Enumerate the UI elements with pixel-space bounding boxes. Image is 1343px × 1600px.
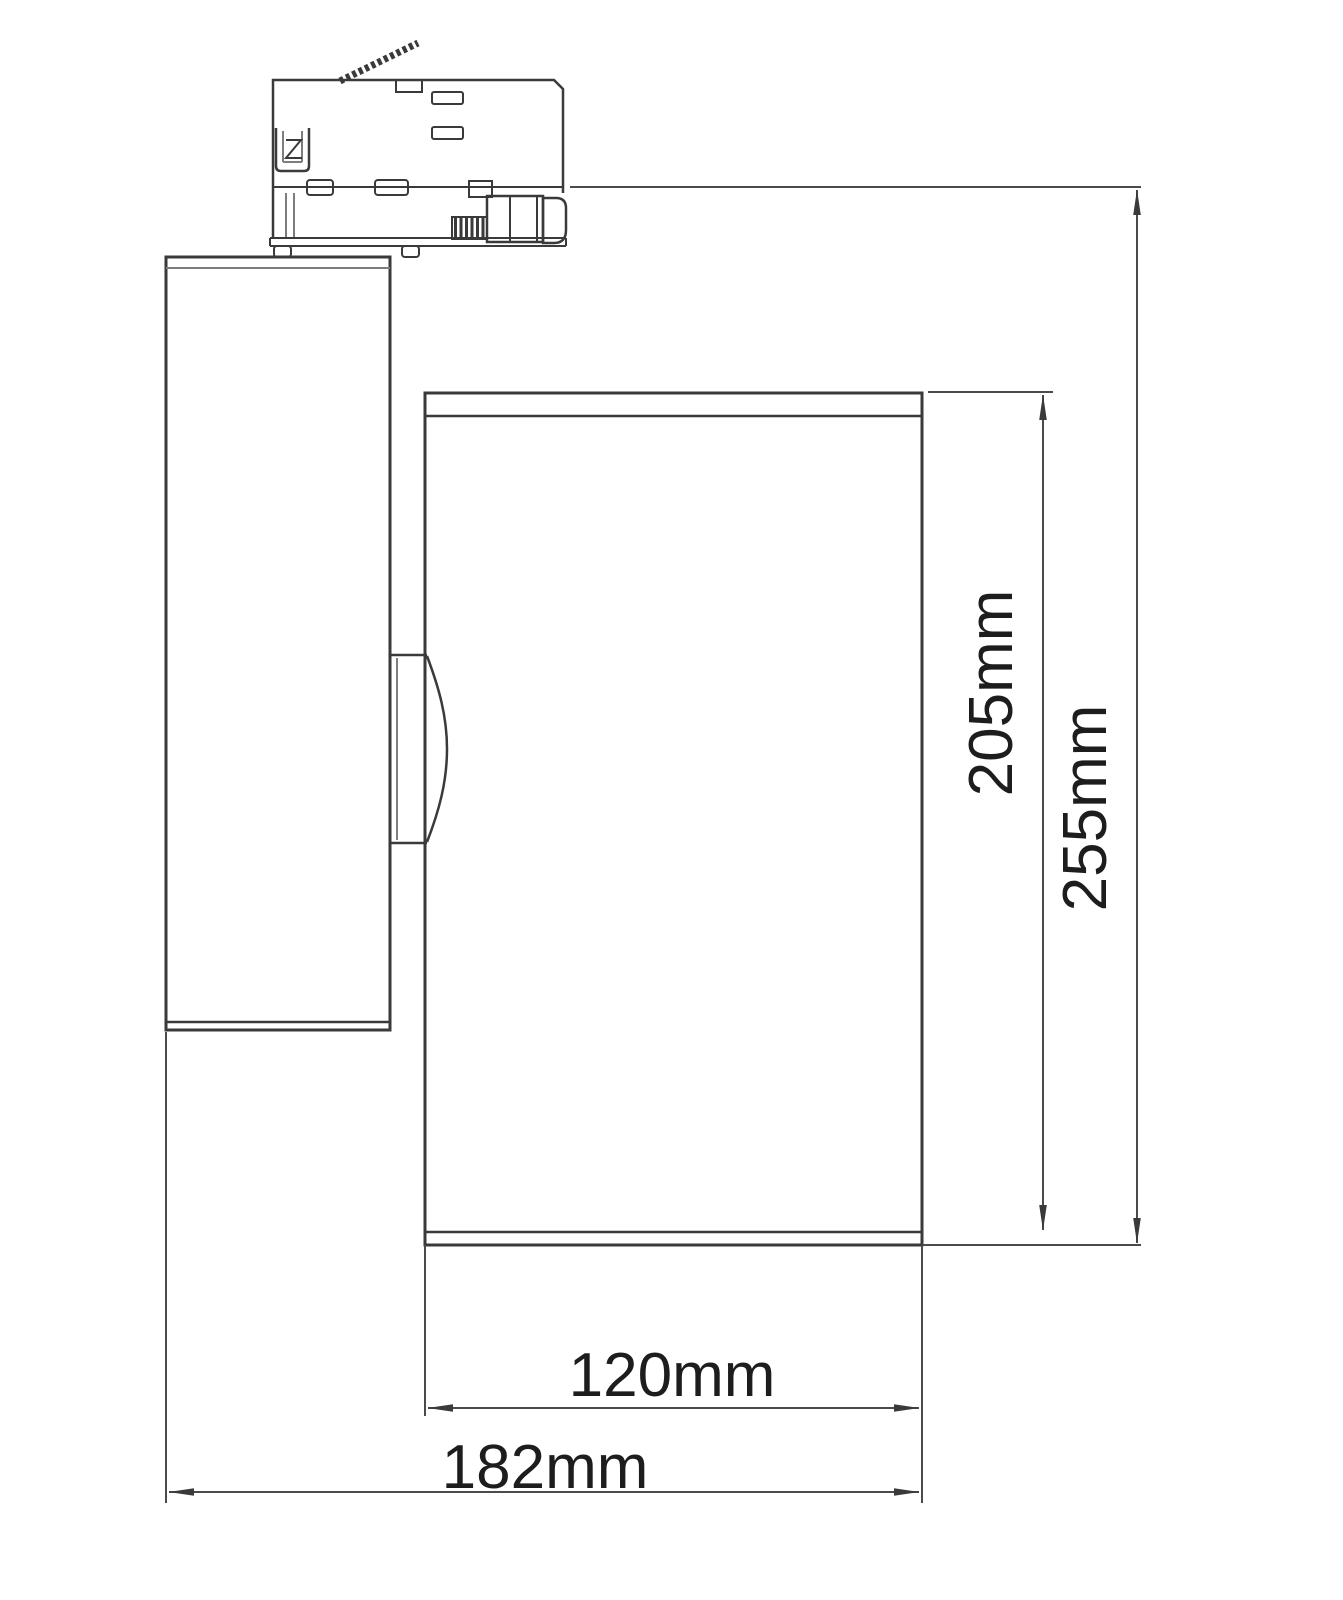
- body-outline: [166, 257, 390, 1030]
- adapter-release-lever: [340, 43, 418, 81]
- adapter-lower-inner-walls: [286, 193, 294, 238]
- track-light-dimension-drawing: 205mm 255mm 120mm 182mm: [0, 0, 1343, 1600]
- adapter-vent-slot-1: [432, 92, 463, 104]
- dim-label-head-width: 120mm: [569, 1341, 776, 1410]
- lock-block-dividers: [510, 196, 537, 242]
- track-adapter: [270, 43, 566, 257]
- adapter-foot-left: [274, 246, 291, 257]
- dim-label-overall-height: 255mm: [1051, 705, 1120, 912]
- knob-bulge: [427, 656, 447, 842]
- adapter-end-cap: [543, 198, 566, 243]
- dim-label-overall-width: 182mm: [442, 1433, 649, 1502]
- dim-label-head-height: 205mm: [957, 590, 1026, 797]
- dimension-drawing-canvas: 205mm 255mm 120mm 182mm: [0, 0, 1343, 1600]
- adapter-foot-right: [402, 246, 419, 257]
- body-side-view: [166, 257, 390, 1030]
- adapter-contact-3: [469, 181, 492, 197]
- dimensions: 205mm 255mm 120mm 182mm: [166, 187, 1141, 1503]
- head-outline: [425, 393, 922, 1245]
- lock-block-body: [487, 196, 543, 242]
- adapter-housing-outline: [273, 80, 563, 238]
- lamp-head-front: [425, 393, 922, 1245]
- knob-top-bottom-edges: [390, 655, 427, 843]
- adapter-ground-contact-bracket: [276, 128, 309, 171]
- adapter-vent-slot-2: [432, 127, 463, 139]
- adapter-knurled-screw: [452, 217, 487, 239]
- adapter-lock-block: [487, 196, 543, 242]
- bracket-z-spring: [286, 140, 302, 158]
- adapter-top-slot: [396, 80, 422, 92]
- tilt-adjust-knob: [390, 655, 447, 843]
